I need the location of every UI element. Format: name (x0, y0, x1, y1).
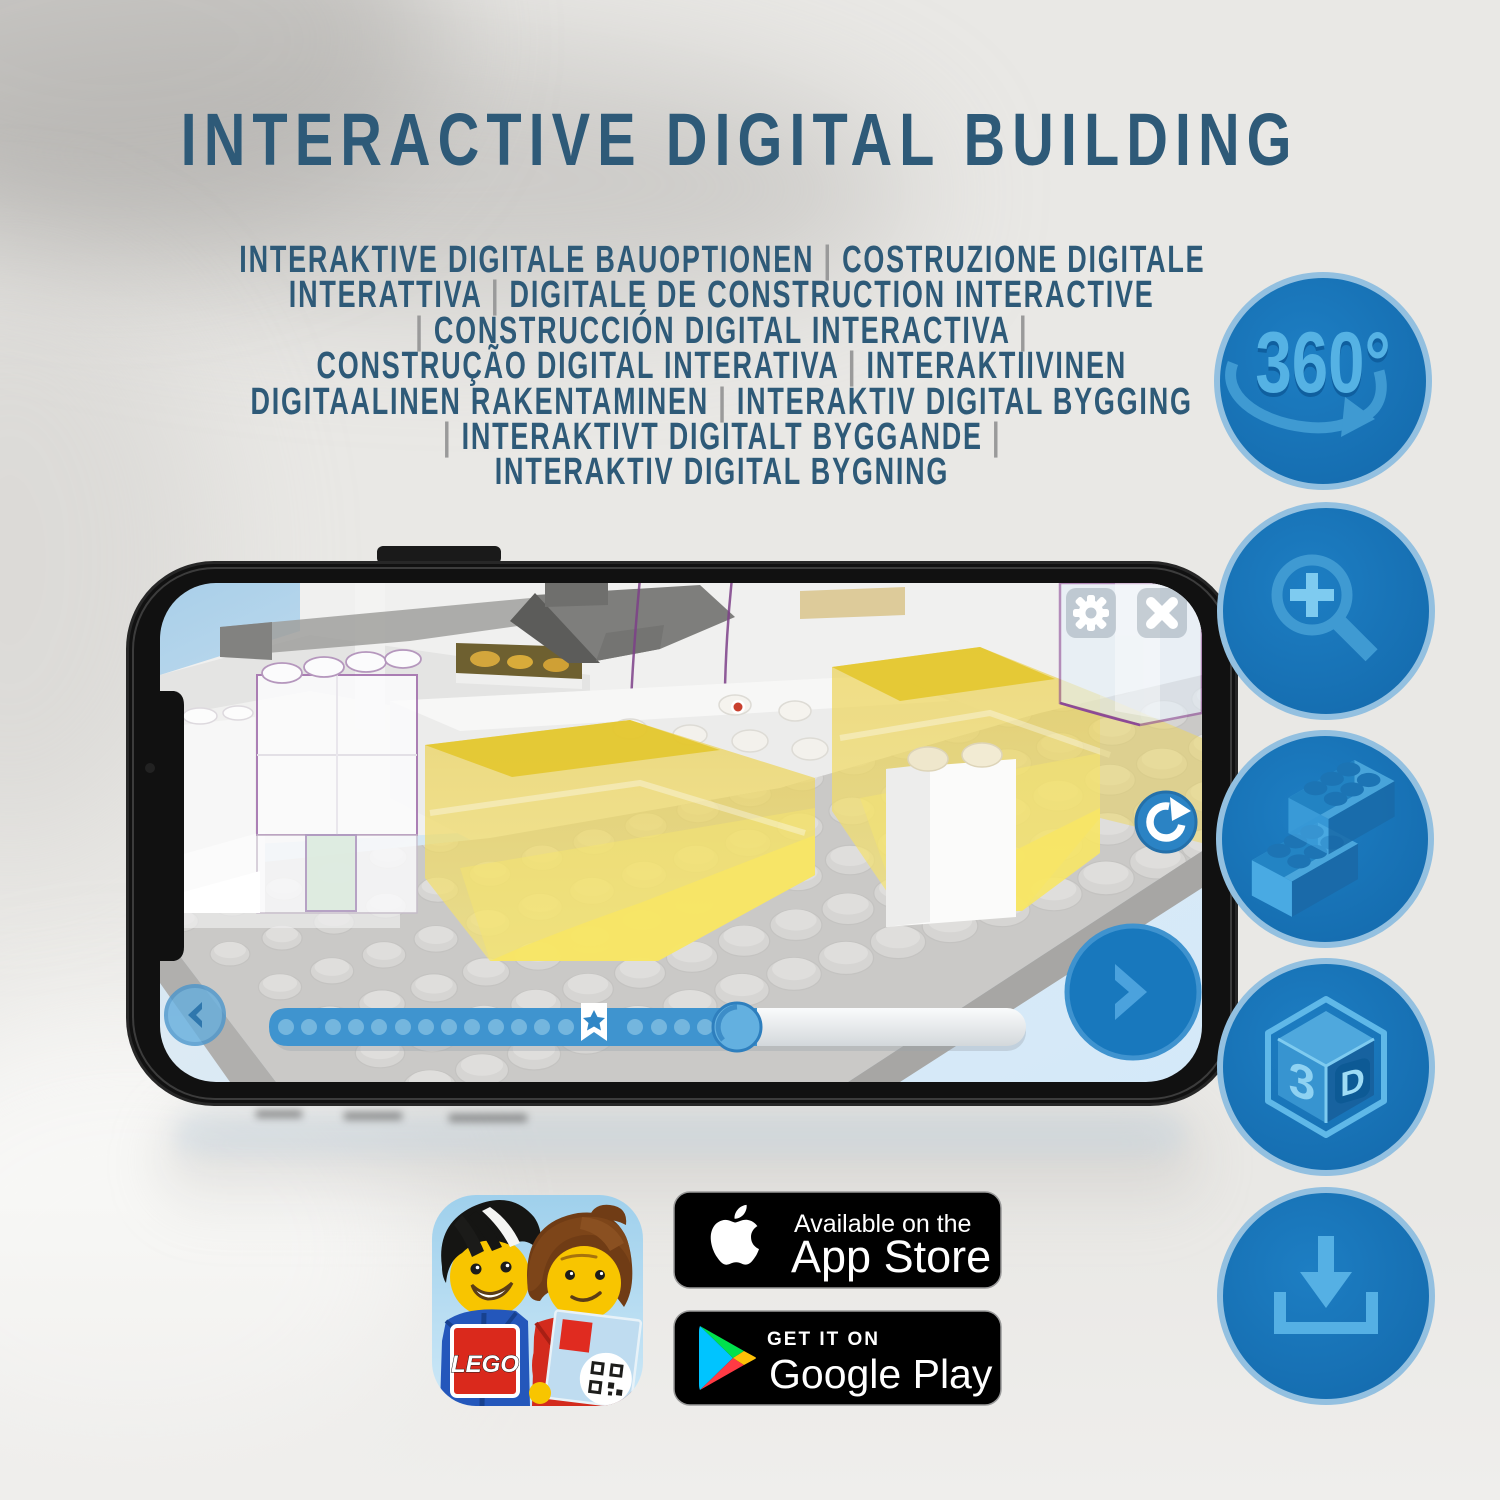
svg-text:Google Play: Google Play (769, 1351, 993, 1397)
svg-text:App Store: App Store (791, 1231, 991, 1282)
svg-text:360°: 360° (1255, 315, 1390, 411)
svg-text:GET IT ON: GET IT ON (767, 1329, 880, 1350)
svg-text:3: 3 (1289, 1052, 1316, 1113)
svg-text:LEGO: LEGO (451, 1351, 519, 1378)
svg-text:D: D (1340, 1060, 1365, 1104)
